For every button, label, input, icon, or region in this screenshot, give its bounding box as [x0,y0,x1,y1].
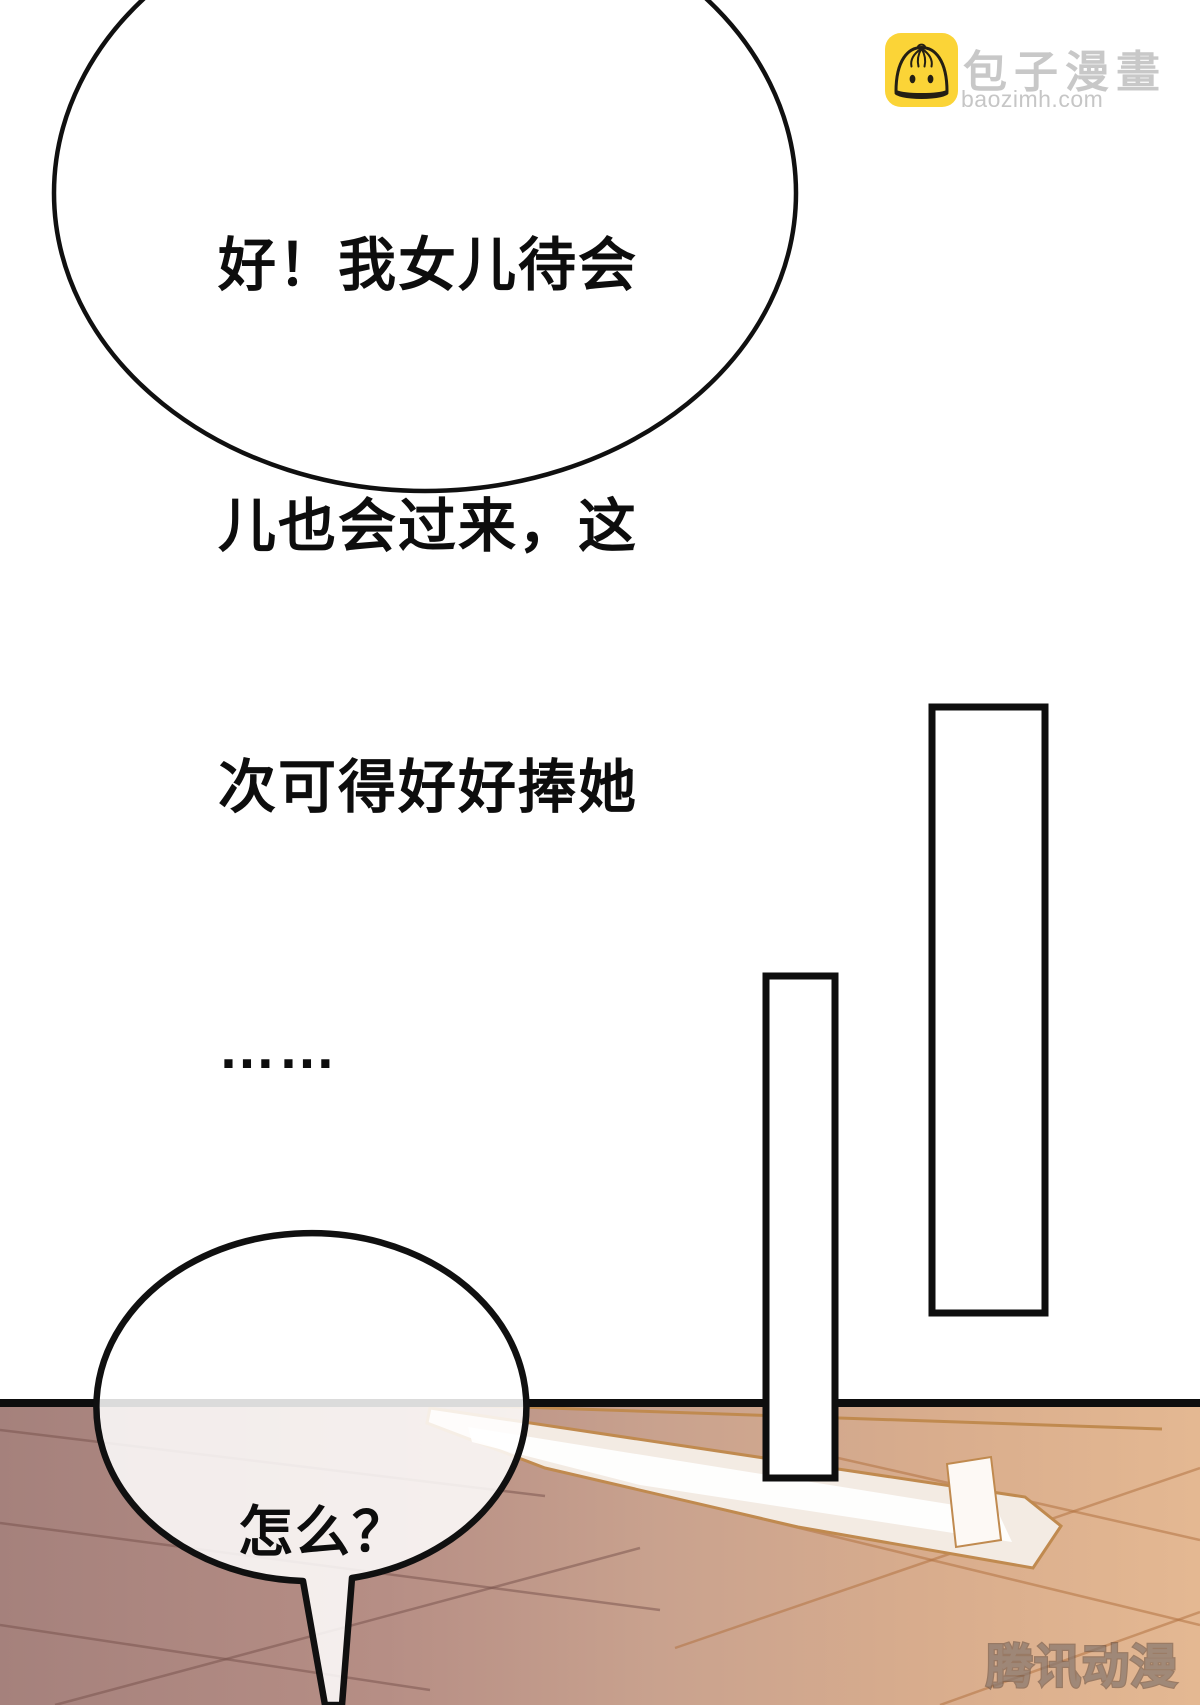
publisher-watermark: 腾讯动漫 [986,1628,1178,1697]
top-bubble-text: 好！我女儿待会 儿也会过来，这 次可得好好捧她 …… [218,48,638,1266]
bottom-bubble-text: 怎么？ 有事？ [238,1330,409,1705]
top-bubble-line-4: …… [218,1005,638,1092]
site-domain: baozimh.com [961,86,1103,113]
top-bubble-line-2: 儿也会过来，这 [218,483,638,570]
site-logo: 包子漫畫 baozimh.com [885,33,1185,113]
bottom-bubble-line-1: 怎么？ [238,1492,409,1573]
top-bubble-line-1: 好！我女儿待会 [218,222,638,309]
baozi-bun-icon [885,33,958,107]
track-corner-reflection [947,1457,1001,1547]
small-pillar [766,976,835,1478]
comic-page: 好！我女儿待会 儿也会过来，这 次可得好好捧她 …… 怎么？ 有事？ [0,0,1200,1705]
tall-pillar [932,707,1045,1313]
top-bubble-line-3: 次可得好好捧她 [218,744,638,831]
